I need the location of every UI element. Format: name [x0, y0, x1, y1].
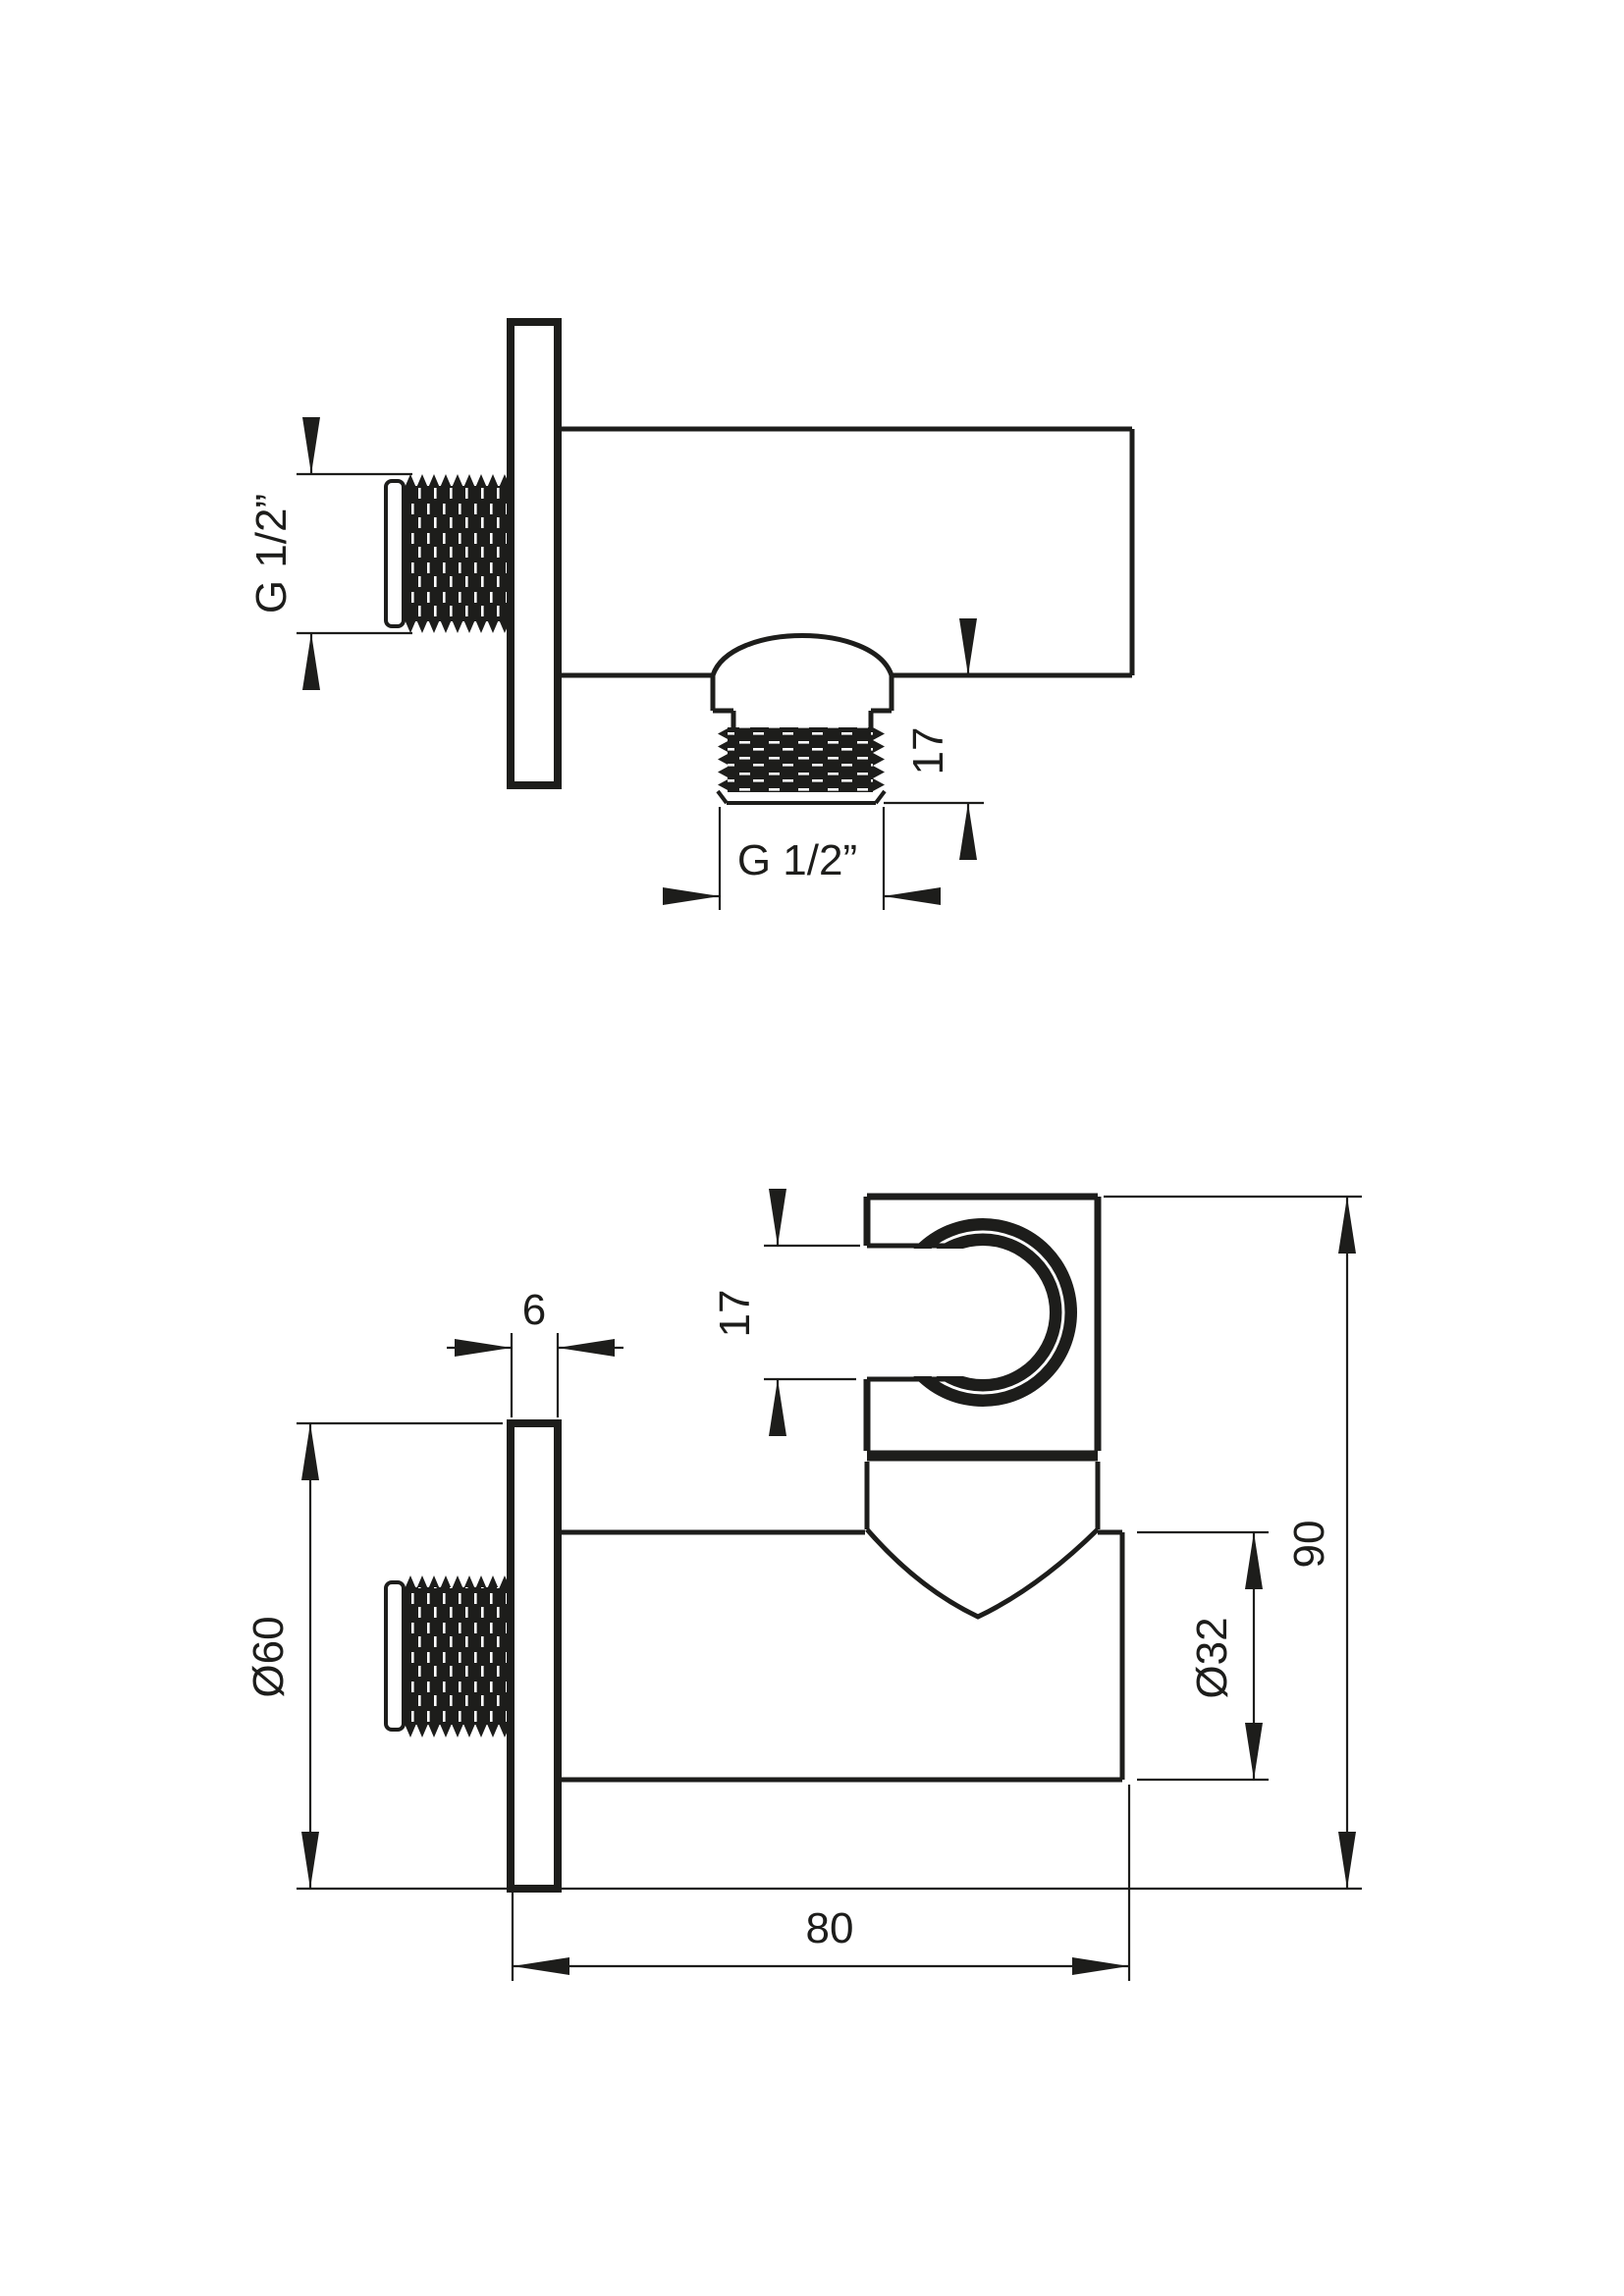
side-view: G 1/2” 17 G 1/2” [247, 322, 1132, 910]
arrowhead-down-icon [1245, 1723, 1263, 1780]
outlet-thread [713, 636, 892, 804]
clamp-v-notch [867, 1529, 1098, 1617]
outlet-dome [713, 636, 892, 676]
inlet-thread [386, 474, 511, 633]
inlet-thread-end-cap [386, 481, 404, 626]
dim-overall-height: 90 [297, 1197, 1362, 1889]
dim-overall-depth: 80 [513, 1785, 1129, 1981]
dim-label-body-diameter: Ø32 [1188, 1617, 1236, 1698]
dim-label-outlet-thread-size: G 1/2” [737, 836, 857, 884]
dim-label-plate-thickness: 6 [522, 1286, 546, 1334]
arrowhead-up-icon [959, 803, 977, 860]
valve-body-front [558, 1532, 1122, 1780]
wall-plate-front [511, 1423, 558, 1889]
dim-outlet-stub-length: 17 [884, 618, 984, 860]
hand-shower-holder [852, 1197, 1098, 1456]
dim-label-overall-height: 90 [1285, 1521, 1333, 1569]
arrowhead-down-icon [959, 618, 977, 675]
outlet-thread-crest-right [873, 727, 885, 791]
inlet-thread-front [386, 1575, 511, 1737]
dim-plate-thickness: 6 [447, 1286, 623, 1417]
inlet-thread-crest-bottom [405, 1724, 511, 1737]
arrowhead-left-icon [513, 1957, 569, 1975]
outlet-thread-chamfer [718, 791, 885, 803]
drawing-page: G 1/2” 17 G 1/2” [0, 0, 1624, 2296]
inlet-thread-body [405, 486, 511, 621]
dim-outlet-thread-size: G 1/2” [663, 807, 941, 910]
inlet-thread-crest-top [405, 474, 511, 488]
arrowhead-up-icon [1338, 1197, 1356, 1254]
arrowhead-down-icon [301, 1832, 319, 1889]
arrowhead-down-icon [1338, 1832, 1356, 1889]
holder-ring-mouth [852, 1249, 983, 1376]
arrowhead-down-icon [302, 417, 320, 474]
front-view: 6 17 Ø60 Ø32 [244, 1189, 1362, 1981]
arrowhead-up-icon [302, 633, 320, 690]
extension-lines [297, 1197, 1362, 1889]
dim-label-overall-depth: 80 [806, 1904, 854, 1952]
inlet-thread-body [405, 1587, 511, 1725]
dim-label-plate-diameter: Ø60 [244, 1616, 293, 1697]
arrowhead-right-icon [455, 1339, 512, 1357]
arrowhead-left-icon [884, 887, 941, 905]
arrowhead-right-icon [663, 887, 720, 905]
inlet-thread-end-cap [386, 1582, 404, 1730]
outlet-thread-body [728, 727, 873, 792]
arrowhead-down-icon [769, 1189, 786, 1246]
arrowhead-up-icon [1245, 1532, 1263, 1589]
extension-lines [764, 1246, 860, 1379]
arrowhead-up-icon [769, 1379, 786, 1436]
dim-label-outlet-stub-length: 17 [904, 727, 952, 775]
inlet-thread-crest-top [405, 1575, 511, 1589]
dim-label-inlet-thread-size: G 1/2” [247, 494, 296, 614]
outlet-collar [713, 675, 892, 727]
arrowhead-left-icon [558, 1339, 615, 1357]
clamp-sides [867, 1462, 1098, 1529]
dim-body-diameter: Ø32 [1137, 1532, 1269, 1780]
extension-lines [512, 1333, 558, 1417]
inlet-thread-crest-bottom [405, 619, 511, 633]
dim-holder-opening: 17 [711, 1189, 860, 1436]
wall-plate [511, 322, 558, 785]
arrowhead-right-icon [1072, 1957, 1129, 1975]
technical-drawing: G 1/2” 17 G 1/2” [0, 0, 1624, 2296]
arrowhead-up-icon [301, 1423, 319, 1480]
holder-clamp [867, 1462, 1098, 1617]
dim-label-holder-opening: 17 [711, 1290, 759, 1338]
